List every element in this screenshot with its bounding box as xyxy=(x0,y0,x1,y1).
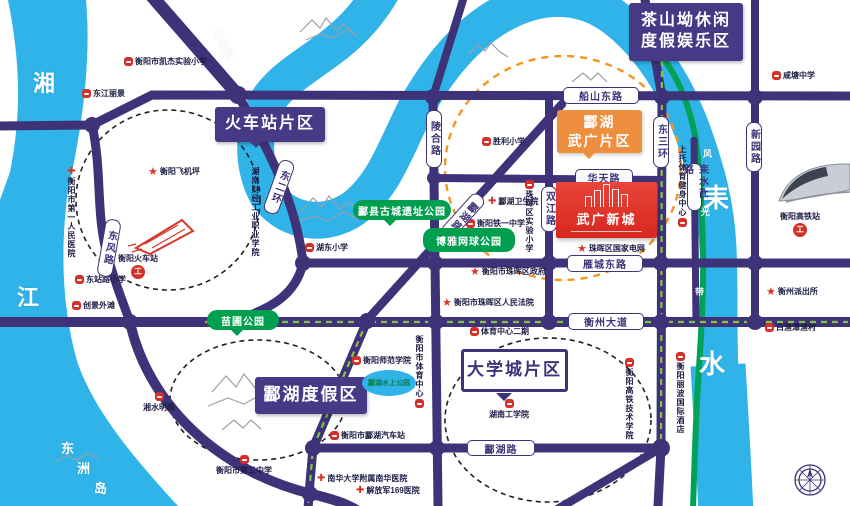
poi-label: 体育中心二期 xyxy=(481,326,529,337)
poi-hsr-tech-college: 衡阳高铁技术学院 xyxy=(624,358,635,440)
road-pill-east-3rd-ring: 东三环 xyxy=(653,116,669,168)
poi-label: 衡阳市体育中心 xyxy=(414,335,425,398)
railway-station-icon: 工 xyxy=(793,223,807,237)
poi-label: 珠晖区国家电网 xyxy=(589,243,645,254)
poi-label: 衡阳市珠晖区政府 xyxy=(482,266,546,277)
park-park-miaopu: 苗圃公园 xyxy=(207,310,279,330)
zone-university-town: 大学城片区 xyxy=(461,349,568,392)
pointer-icon xyxy=(581,151,597,167)
zone-label: 大学城片区 xyxy=(467,359,562,381)
star-icon: ★ xyxy=(148,167,158,177)
star-icon: ★ xyxy=(470,267,480,277)
poi-hengyang-normal-university: 衡阳师范学院 xyxy=(352,355,411,366)
poi-school-xiantang: 咸塘中学 xyxy=(772,70,815,81)
poi-label: 衡阳高铁站 xyxy=(780,211,820,222)
road-pill-shuangjiang-rd: 双江路 xyxy=(541,186,557,232)
dongzhou-island-char1: 东 xyxy=(61,438,74,457)
poi-label: 东江丽景 xyxy=(93,88,125,99)
poi-label: 衡阳市第一人民医院 xyxy=(66,177,77,258)
poi-marker-icon xyxy=(482,137,491,146)
zone-chashanao: 茶山坳休闲度假娱乐区 xyxy=(629,3,743,61)
poi-marker-icon xyxy=(155,392,164,401)
scenic-belt-char3: 带 xyxy=(695,285,704,298)
poi-label: 衡阳飞机坪 xyxy=(160,166,200,177)
poi-state-grid-zhuhui: ★珠晖区国家电网 xyxy=(577,243,645,254)
poi-police-hengzhou: ★衡州派出所 xyxy=(766,286,818,297)
poi-label: 湖东小学 xyxy=(316,242,348,253)
poi-city-sports-center: 衡阳市体育中心 xyxy=(414,335,425,408)
hospital-cross-icon: ✚ xyxy=(488,197,496,206)
poi-school-kaijie: 衡阳市凯杰实验小学 xyxy=(124,56,207,67)
poi-label: 衡阳师范学院 xyxy=(363,355,411,366)
park-park-boya-tennis: 博雅网球公园 xyxy=(423,228,515,252)
road-east-3rd-ring-branch xyxy=(556,448,661,506)
poi-marker-icon xyxy=(82,89,91,98)
poi-label: 衡阳市第三中学 xyxy=(216,465,272,476)
poi-no3-middle-school: 衡阳市第三中学 xyxy=(216,455,272,476)
poi-court-zhuhui: ★衡阳市珠晖区人民法院 xyxy=(442,297,534,308)
poi-chuangjing-waitan: 创景外滩 xyxy=(72,300,115,311)
hospital-cross-icon: ✚ xyxy=(356,486,364,495)
scenic-belt-char2: 光 xyxy=(701,205,710,218)
poi-label: 湘水明珠 xyxy=(143,402,175,413)
project-wuguang-xincheng: 武广新城 xyxy=(556,182,657,238)
zone-linghu-resort: 酃湖度假区 xyxy=(255,377,367,414)
poi-label: 衡州派出所 xyxy=(778,286,818,297)
railway-station-icon: 工 xyxy=(131,265,145,279)
poi-label: 衡阳市珠晖区人民法院 xyxy=(454,297,534,308)
poi-label: 解放军169医院 xyxy=(366,485,419,496)
poi-marker-icon xyxy=(72,301,81,310)
poi-label: 珠晖区实验小学 xyxy=(524,190,535,253)
pointer-icon xyxy=(248,140,264,156)
poi-label: 衡阳市凯杰实验小学 xyxy=(135,56,207,67)
zone-linghu-wuguang: 酃湖武广片区 xyxy=(557,110,642,153)
poi-marker-icon xyxy=(470,327,479,336)
project-tagline-rule xyxy=(571,231,642,233)
poi-marker-icon xyxy=(330,431,339,440)
poi-marker-icon xyxy=(124,57,133,66)
poi-label: 南华大学附属南华医院 xyxy=(327,473,407,484)
star-icon: ★ xyxy=(577,244,587,254)
road-pill-linghu-rd: 酃湖路 xyxy=(467,440,535,456)
poi-marker-icon xyxy=(525,180,534,189)
poi-school-zhuhui-shiyan: 珠晖区实验小学 xyxy=(524,180,535,253)
poi-finance-industry-college: 湖南财经工业职业学院 xyxy=(250,167,261,257)
star-icon: ★ xyxy=(766,287,776,297)
poi-dongjiang-lijing: 东江丽景 xyxy=(82,88,125,99)
poi-label: 湖南工学院 xyxy=(489,409,529,420)
poi-label: 衡阳火车站 xyxy=(118,253,158,264)
road-pill-hengzhou-ave: 衡州大道 xyxy=(568,313,644,330)
poi-hengyang-railway-station: 衡阳火车站工 xyxy=(118,253,158,279)
poi-marker-icon xyxy=(240,455,249,464)
red-train-sketch xyxy=(128,220,193,254)
poi-baiyutan-fishing-village: 白渔潭渔村 xyxy=(765,322,816,333)
poi-marker-icon xyxy=(676,352,685,361)
project-name: 武广新城 xyxy=(576,209,636,228)
linghu-water-park: 酃湖水上公园 xyxy=(362,370,416,396)
poi-sports-center-phase2: 体育中心二期 xyxy=(470,326,529,337)
park-park-ancient-city: 酃县古城遗址公园 xyxy=(353,200,451,220)
poi-label: 衡阳高铁技术学院 xyxy=(624,368,635,440)
hospital-cross-icon: ✚ xyxy=(317,474,325,483)
poi-label: 衡阳丽波国际酒店 xyxy=(675,362,686,434)
road-pill-yancheng-east-rd: 雁城东路 xyxy=(567,255,643,272)
zone-railway-station: 火车站片区 xyxy=(215,107,325,142)
road-pill-xinyuan-rd: 新园路 xyxy=(746,122,762,172)
location-map: 衡阳市凯杰实验小学东江丽景咸塘中学胜利小学✚酃湖卫生院衡阳铁一中学珠晖区实验小学… xyxy=(0,0,850,506)
poi-label: 衡阳市酃湖汽车站 xyxy=(341,430,405,441)
poi-marker-icon xyxy=(352,356,361,365)
road-pill-linghe-rd: 陵合路 xyxy=(426,110,442,168)
pointer-icon xyxy=(496,393,512,409)
dongzhou-island-char3: 岛 xyxy=(94,478,107,497)
poi-marker-icon xyxy=(678,218,687,227)
poi-label: 咸塘中学 xyxy=(783,70,815,81)
dongzhou-island-char2: 洲 xyxy=(77,458,90,477)
road-pill-leishui-west-rd: 耒水西路 xyxy=(687,163,702,211)
zone-label: 酃湖度假区 xyxy=(264,384,359,406)
poi-label: 白渔潭渔村 xyxy=(776,322,816,333)
compass-icon xyxy=(795,465,825,495)
zone-label: 度假娱乐区 xyxy=(641,32,731,53)
zone-label: 武广片区 xyxy=(568,132,632,150)
zone-label: 酃湖 xyxy=(584,113,616,131)
leishui-river-wide xyxy=(718,365,726,506)
poi-marker-icon xyxy=(415,399,424,408)
poi-marker-icon xyxy=(75,275,84,284)
poi-linghu-bus-station: 衡阳市酃湖汽车站 xyxy=(330,430,405,441)
poi-hospital-first-people: ✚衡阳市第一人民医院 xyxy=(66,167,77,258)
poi-marker-icon xyxy=(625,358,634,367)
leishui-char2: 水 xyxy=(699,344,725,381)
scenic-belt-char1: 风 xyxy=(703,147,712,160)
poi-label: 湖南财经工业职业学院 xyxy=(250,167,261,257)
poi-pla-169-hospital: ✚解放军169医院 xyxy=(356,485,420,496)
poi-hengyang-hsr-station: 衡阳高铁站工 xyxy=(780,211,820,237)
star-icon: ★ xyxy=(442,298,452,308)
zone-label: 火车站片区 xyxy=(225,114,315,135)
pointer-icon xyxy=(229,328,245,344)
poi-school-hudong: 湖东小学 xyxy=(305,242,348,253)
hsr-train-image xyxy=(779,164,850,202)
poi-label: 胜利小学 xyxy=(493,136,525,147)
poi-marker-icon xyxy=(772,71,781,80)
xiangjiang-char2: 江 xyxy=(17,280,39,312)
poi-marker-icon xyxy=(305,243,314,252)
poi-nanhua-university-hospital: ✚南华大学附属南华医院 xyxy=(317,473,407,484)
road-pill-chuanshan-east-rd: 船山东路 xyxy=(563,87,639,104)
poi-label: 创景外滩 xyxy=(83,300,115,311)
pointer-icon xyxy=(382,218,398,234)
poi-school-shengli: 胜利小学 xyxy=(482,136,525,147)
poi-xiangshui-mingzhu: 湘水明珠 xyxy=(143,392,175,413)
poi-gov-zhuhui-district: ★衡阳市珠晖区政府 xyxy=(470,266,546,277)
hospital-cross-icon: ✚ xyxy=(67,167,75,176)
poi-libo-international-hotel: 衡阳丽波国际酒店 xyxy=(675,352,686,434)
poi-hengyang-airstrip: ★衡阳飞机坪 xyxy=(148,166,200,177)
xiangjiang-char1: 湘 xyxy=(33,66,55,98)
poi-marker-icon xyxy=(765,323,774,332)
building-towers-icon xyxy=(585,185,628,207)
zone-label: 茶山坳休闲 xyxy=(641,11,731,32)
